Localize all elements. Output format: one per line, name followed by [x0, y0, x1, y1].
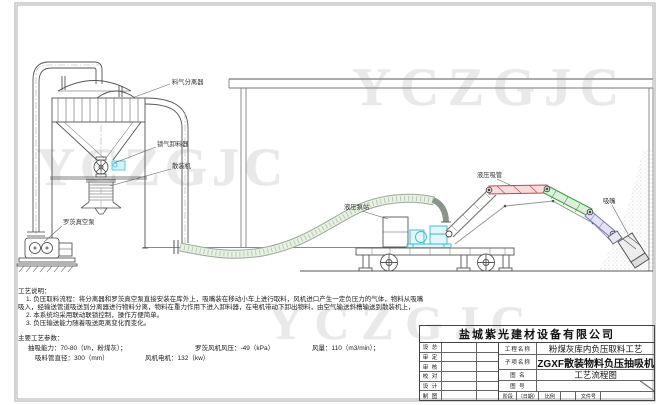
drawing-no	[537, 381, 654, 391]
drawing-page: YCZGJC YCZGJC YCZGJC	[0, 0, 661, 405]
company-name: 盐城紫光建材设备有限公司	[420, 326, 654, 343]
param-fan-motor: 风机电机：132（kw）	[145, 352, 209, 362]
airlock-discharger	[94, 157, 125, 177]
signature-grid: 设 总 审 定 审 核 校 对 设 计 制 图	[420, 343, 499, 400]
label-airlock: 锁气卸料器	[157, 139, 189, 148]
notes-line: 2. 本系统均采用联动联锁控制，操作方便简单。	[18, 312, 648, 320]
label-nozzle: 吸嘴	[603, 196, 616, 205]
ground-hatch	[19, 266, 73, 272]
sign-row-label: 校 对	[420, 372, 442, 381]
jack-leg	[457, 255, 470, 271]
params-title: 主要工艺参数：	[18, 332, 64, 342]
title-block: 盐城紫光建材设备有限公司 设 总 审 定 审 核 校 对 设 计 制 图 工程名…	[419, 325, 655, 401]
subitem-name: ZGXF散装物料负压抽吸机	[537, 355, 654, 369]
sign-row-label: 设 计	[420, 382, 442, 391]
trolley-wheel	[478, 254, 495, 271]
notes-title: 工艺说明：	[18, 288, 648, 296]
suction-fan-unit	[407, 226, 451, 248]
piping	[33, 62, 188, 246]
subitem-name-label: 子项名称	[499, 355, 537, 369]
trolley	[356, 217, 514, 271]
drawing-no-label: 图 号	[499, 381, 537, 391]
hose-elbow	[433, 200, 446, 222]
arm-segment-green	[543, 186, 592, 217]
hopper-cone	[56, 122, 97, 160]
label-bulk-loader: 散装机	[172, 161, 192, 170]
process-notes: 工艺说明： 1. 负压取料流程：将分离器和罗茨真空泵直接安装在库外上，吸嘴装在移…	[18, 288, 648, 328]
trolley-wheel	[381, 254, 398, 271]
param-fan-pressure: 罗茨风机风压：-49（kPa）	[195, 342, 274, 352]
file-no-value	[601, 392, 654, 400]
sign-row-label: 制 图	[420, 391, 442, 400]
scale-label: 比例	[539, 392, 561, 400]
sign-row-label: 设 总	[420, 343, 442, 352]
project-name: 粉煤灰库内负压取料工艺	[537, 343, 654, 354]
drawing-name: 工艺流程图	[537, 370, 654, 380]
label-suction-pipe: 液压吸管	[477, 170, 502, 179]
separator-dome	[97, 91, 135, 98]
stage-label: 阶段	[499, 392, 517, 400]
pump-motor	[59, 243, 72, 256]
arm-joints	[446, 186, 616, 237]
date-label: （日期）	[517, 392, 539, 400]
param-capacity: 抽吸能力：70-80（t/h，粉煤灰）；	[28, 342, 127, 352]
notes-line: 1. 负压取料流程：将分离器和罗茨真空泵直接安装在库外上，吸嘴装在移动小车上进行…	[18, 296, 648, 304]
file-no-label: 文件号	[576, 392, 601, 400]
jack-leg	[359, 255, 372, 271]
sign-row-label: 审 定	[420, 353, 442, 362]
sign-row-label: 审 核	[420, 362, 442, 371]
drawing-name-label: 图 名	[499, 370, 537, 380]
silo-roof-arc	[58, 81, 131, 92]
param-air-volume: 风量：110（m3/min）；	[312, 342, 379, 352]
blank-slash	[640, 381, 654, 391]
label-pump-station: 液压泵站	[344, 202, 370, 211]
vacuum-pipe-left	[33, 62, 94, 232]
project-name-label: 工程名称	[499, 343, 537, 354]
label-roots-pump: 罗茨真空泵	[63, 217, 95, 226]
scale-value	[561, 392, 576, 400]
roots-vacuum-pump	[17, 232, 77, 272]
notes-line: 吸入，经输送管道吸送到分离器进行物料分离，物料在重力作用下进入卸料器，在电机带动…	[18, 304, 648, 312]
arm-boom	[446, 189, 496, 237]
label-separator: 料气分离器	[172, 77, 204, 86]
param-pipe-diameter: 吸料管直径：300（mm）	[35, 352, 109, 362]
trolley-platform	[356, 248, 514, 255]
jack-leg	[499, 255, 512, 271]
equipment-labels: 料气分离器 锁气卸料器 散装机 罗茨真空泵 液压泵站 液压吸管 吸嘴	[63, 77, 616, 226]
centerlines	[36, 65, 185, 246]
airlock-motor	[112, 161, 125, 170]
